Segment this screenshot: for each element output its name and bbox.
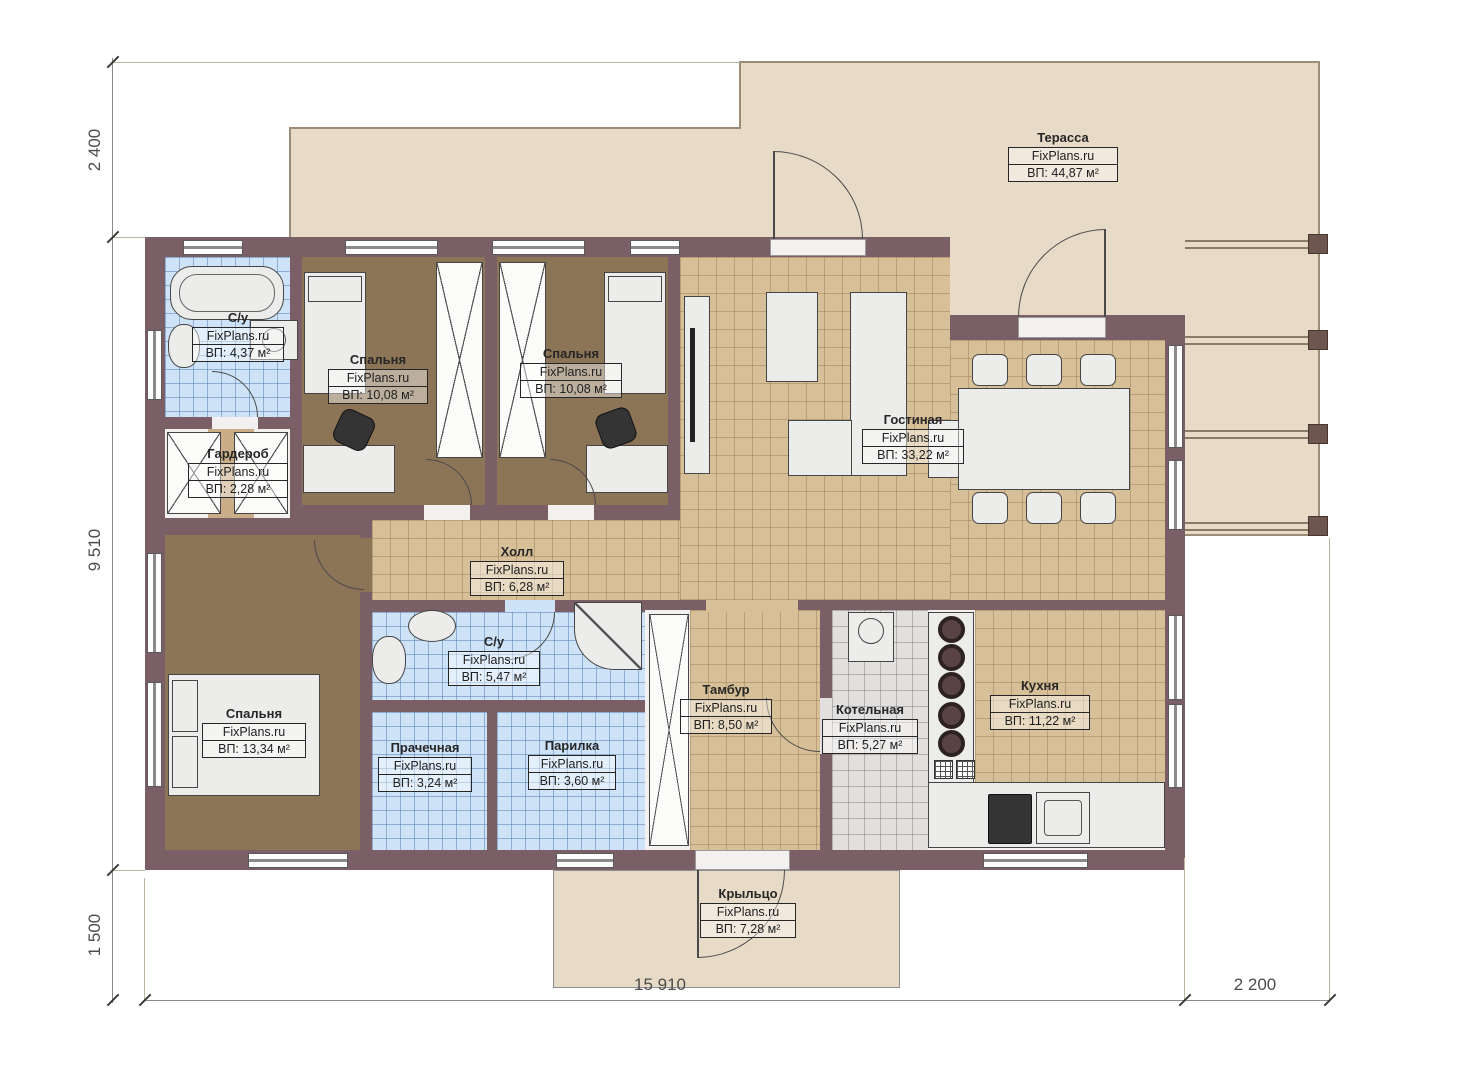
pergola-post — [1308, 424, 1328, 444]
door-gap-terrace — [770, 239, 866, 256]
door-leaf — [1104, 229, 1106, 317]
room-brand: FixPlans.ru — [1009, 148, 1117, 164]
room-area: ВП: 8,50 м² — [681, 716, 771, 733]
room-brand: FixPlans.ru — [471, 562, 563, 578]
room-info-box: FixPlans.ru ВП: 6,28 м² — [470, 561, 564, 596]
room-label-wardrobe: Гардероб FixPlans.ru ВП: 2,28 м² — [188, 446, 288, 498]
dimension-label-bottom-main: 15 910 — [595, 975, 725, 995]
stove-burner — [938, 616, 965, 643]
floor-plan: Терасса FixPlans.ru ВП: 44,87 м² С/у Fix… — [0, 0, 1473, 1080]
room-brand: FixPlans.ru — [701, 904, 795, 920]
room-brand: FixPlans.ru — [991, 696, 1089, 712]
pergola-post — [1308, 330, 1328, 350]
window — [1168, 615, 1183, 700]
terrace-outline — [289, 127, 291, 237]
room-info-box: FixPlans.ru ВП: 4,37 м² — [192, 327, 284, 362]
room-brand: FixPlans.ru — [189, 464, 287, 480]
terrace-outline — [739, 61, 741, 129]
pergola-beam — [1185, 430, 1328, 439]
stove-burner — [938, 702, 965, 729]
door-gap-bedroom-2 — [548, 505, 594, 520]
room-brand: FixPlans.ru — [681, 700, 771, 716]
dining-chair — [1026, 492, 1062, 524]
room-label-hall: Холл FixPlans.ru ВП: 6,28 м² — [470, 544, 564, 596]
room-label-porch: Крыльцо FixPlans.ru ВП: 7,28 м² — [700, 886, 796, 938]
dining-chair — [1080, 492, 1116, 524]
door-gap-bathroom-2 — [505, 600, 555, 612]
dimension-label-left-bottom: 1 500 — [85, 885, 105, 985]
window — [147, 330, 162, 400]
window — [492, 240, 585, 255]
window — [1168, 345, 1183, 448]
room-name: Прачечная — [378, 740, 472, 755]
pergola-beam — [1185, 522, 1328, 531]
pergola-beam — [1185, 240, 1328, 249]
coffee-table — [766, 292, 818, 382]
room-info-box: FixPlans.ru ВП: 44,87 м² — [1008, 147, 1118, 182]
pillow — [172, 736, 198, 788]
room-info-box: FixPlans.ru ВП: 3,60 м² — [528, 755, 616, 790]
room-brand: FixPlans.ru — [521, 364, 621, 380]
room-info-box: FixPlans.ru ВП: 7,28 м² — [700, 903, 796, 938]
stove-burner — [938, 644, 965, 671]
room-name: Спальня — [202, 706, 306, 721]
room-area: ВП: 11,22 м² — [991, 712, 1089, 729]
window — [1168, 460, 1183, 530]
room-info-box: FixPlans.ru ВП: 2,28 м² — [188, 463, 288, 498]
window — [983, 853, 1088, 868]
terrace-right — [1185, 237, 1320, 535]
room-info-box: FixPlans.ru ВП: 5,27 м² — [822, 719, 918, 754]
window — [248, 853, 348, 868]
window — [147, 682, 162, 787]
room-info-box: FixPlans.ru ВП: 11,22 м² — [990, 695, 1090, 730]
room-label-terrace: Терасса FixPlans.ru ВП: 44,87 м² — [1008, 130, 1118, 182]
pergola-beam — [1185, 336, 1328, 345]
room-name: Тамбур — [680, 682, 772, 697]
room-label-kitchen: Кухня FixPlans.ru ВП: 11,22 м² — [990, 678, 1090, 730]
terrace-outline — [1318, 61, 1320, 536]
pillow — [608, 276, 662, 302]
terrace-strip — [290, 128, 742, 237]
extension-line — [144, 878, 145, 1002]
terrace-outline — [290, 127, 741, 129]
room-name: Спальня — [328, 352, 428, 367]
room-info-box: FixPlans.ru ВП: 3,24 м² — [378, 757, 472, 792]
room-label-boiler: Котельная FixPlans.ru ВП: 5,27 м² — [822, 702, 918, 754]
door-gap-vestibule — [706, 600, 798, 612]
room-info-box: FixPlans.ru ВП: 5,47 м² — [448, 651, 540, 686]
room-brand: FixPlans.ru — [203, 724, 305, 740]
room-area: ВП: 2,28 м² — [189, 480, 287, 497]
window — [556, 853, 614, 868]
dimension-label-left-middle: 9 510 — [85, 500, 105, 600]
room-name: Крыльцо — [700, 886, 796, 901]
window — [345, 240, 438, 255]
dimension-line-left — [112, 58, 113, 1003]
pergola-post — [1308, 516, 1328, 536]
room-label-bathroom-2: С/у FixPlans.ru ВП: 5,47 м² — [448, 634, 540, 686]
room-name: Спальня — [520, 346, 622, 361]
door-gap-bathroom-1 — [212, 417, 258, 429]
room-area: ВП: 10,08 м² — [521, 380, 621, 397]
stove-burner — [938, 672, 965, 699]
room-brand: FixPlans.ru — [379, 758, 471, 774]
window — [147, 553, 162, 653]
dining-chair — [1080, 354, 1116, 386]
room-name: Котельная — [822, 702, 918, 717]
pillow — [172, 680, 198, 732]
room-info-box: FixPlans.ru ВП: 13,34 м² — [202, 723, 306, 758]
door-gap-entrance — [695, 850, 790, 870]
tv — [690, 328, 695, 442]
stove-grate — [956, 760, 975, 779]
room-label-steam: Парилка FixPlans.ru ВП: 3,60 м² — [528, 738, 616, 790]
room-label-living: Гостиная FixPlans.ru ВП: 33,22 м² — [862, 412, 964, 464]
room-brand: FixPlans.ru — [329, 370, 427, 386]
room-area: ВП: 3,24 м² — [379, 774, 471, 791]
room-name: Гостиная — [862, 412, 964, 427]
extension-line — [1184, 858, 1185, 1002]
room-name: Кухня — [990, 678, 1090, 693]
room-name: С/у — [448, 634, 540, 649]
room-label-bedroom-2: Спальня FixPlans.ru ВП: 10,08 м² — [520, 346, 622, 398]
room-name: Холл — [470, 544, 564, 559]
room-area: ВП: 44,87 м² — [1009, 164, 1117, 181]
room-label-laundry: Прачечная FixPlans.ru ВП: 3,24 м² — [378, 740, 472, 792]
room-name: Терасса — [1008, 130, 1118, 145]
terrace-outline — [740, 61, 1320, 63]
kitchen-sink-basin — [1044, 800, 1082, 836]
door-leaf — [697, 870, 699, 958]
dimension-label-bottom-right: 2 200 — [1190, 975, 1320, 995]
bathtub-inner — [179, 274, 275, 312]
extension-line — [1329, 538, 1330, 1002]
window — [1168, 704, 1183, 788]
water-heater-dial — [858, 618, 884, 644]
dining-chair — [972, 492, 1008, 524]
desk — [303, 445, 395, 493]
pergola-post — [1308, 234, 1328, 254]
closet — [436, 262, 483, 458]
extension-line — [113, 870, 145, 871]
dining-chair — [1026, 354, 1062, 386]
room-name: Парилка — [528, 738, 616, 753]
door-gap-bedroom-1 — [424, 505, 470, 520]
room-brand: FixPlans.ru — [863, 430, 963, 446]
room-info-box: FixPlans.ru ВП: 10,08 м² — [520, 363, 622, 398]
desk — [586, 445, 668, 493]
room-label-bathroom-1: С/у FixPlans.ru ВП: 4,37 м² — [192, 310, 284, 362]
window — [183, 240, 243, 255]
room-brand: FixPlans.ru — [193, 328, 283, 344]
dining-chair — [972, 354, 1008, 386]
dimension-line-bottom — [145, 1000, 1330, 1001]
room-label-bedroom-3: Спальня FixPlans.ru ВП: 13,34 м² — [202, 706, 306, 758]
room-brand: FixPlans.ru — [449, 652, 539, 668]
room-area: ВП: 13,34 м² — [203, 740, 305, 757]
room-name: С/у — [192, 310, 284, 325]
room-info-box: FixPlans.ru ВП: 33,22 м² — [862, 429, 964, 464]
pillow — [308, 276, 362, 302]
dimension-tick — [107, 994, 120, 1007]
stove-burner — [938, 730, 965, 757]
room-brand: FixPlans.ru — [823, 720, 917, 736]
room-label-bedroom-1: Спальня FixPlans.ru ВП: 10,08 м² — [328, 352, 428, 404]
dining-table — [958, 388, 1130, 490]
room-area: ВП: 5,27 м² — [823, 736, 917, 753]
door-gap-terrace-2 — [1018, 317, 1106, 338]
room-label-vestibule: Тамбур FixPlans.ru ВП: 8,50 м² — [680, 682, 772, 734]
room-area: ВП: 5,47 м² — [449, 668, 539, 685]
room-info-box: FixPlans.ru ВП: 8,50 м² — [680, 699, 772, 734]
kitchen-appliance — [988, 794, 1032, 844]
room-area: ВП: 33,22 м² — [863, 446, 963, 463]
room-area: ВП: 10,08 м² — [329, 386, 427, 403]
room-name: Гардероб — [188, 446, 288, 461]
room-info-box: FixPlans.ru ВП: 10,08 м² — [328, 369, 428, 404]
sofa-corner — [788, 420, 852, 476]
tv-stand — [684, 296, 710, 474]
stove-grate — [934, 760, 953, 779]
window — [630, 240, 680, 255]
room-area: ВП: 3,60 м² — [529, 772, 615, 789]
room-area: ВП: 6,28 м² — [471, 578, 563, 595]
terrace-outline — [1185, 534, 1320, 536]
extension-line — [113, 62, 740, 63]
room-area: ВП: 7,28 м² — [701, 920, 795, 937]
room-area: ВП: 4,37 м² — [193, 344, 283, 361]
room-brand: FixPlans.ru — [529, 756, 615, 772]
door-leaf — [773, 151, 775, 239]
extension-line — [113, 237, 145, 238]
dimension-label-left-top: 2 400 — [85, 100, 105, 200]
toilet — [372, 636, 406, 684]
